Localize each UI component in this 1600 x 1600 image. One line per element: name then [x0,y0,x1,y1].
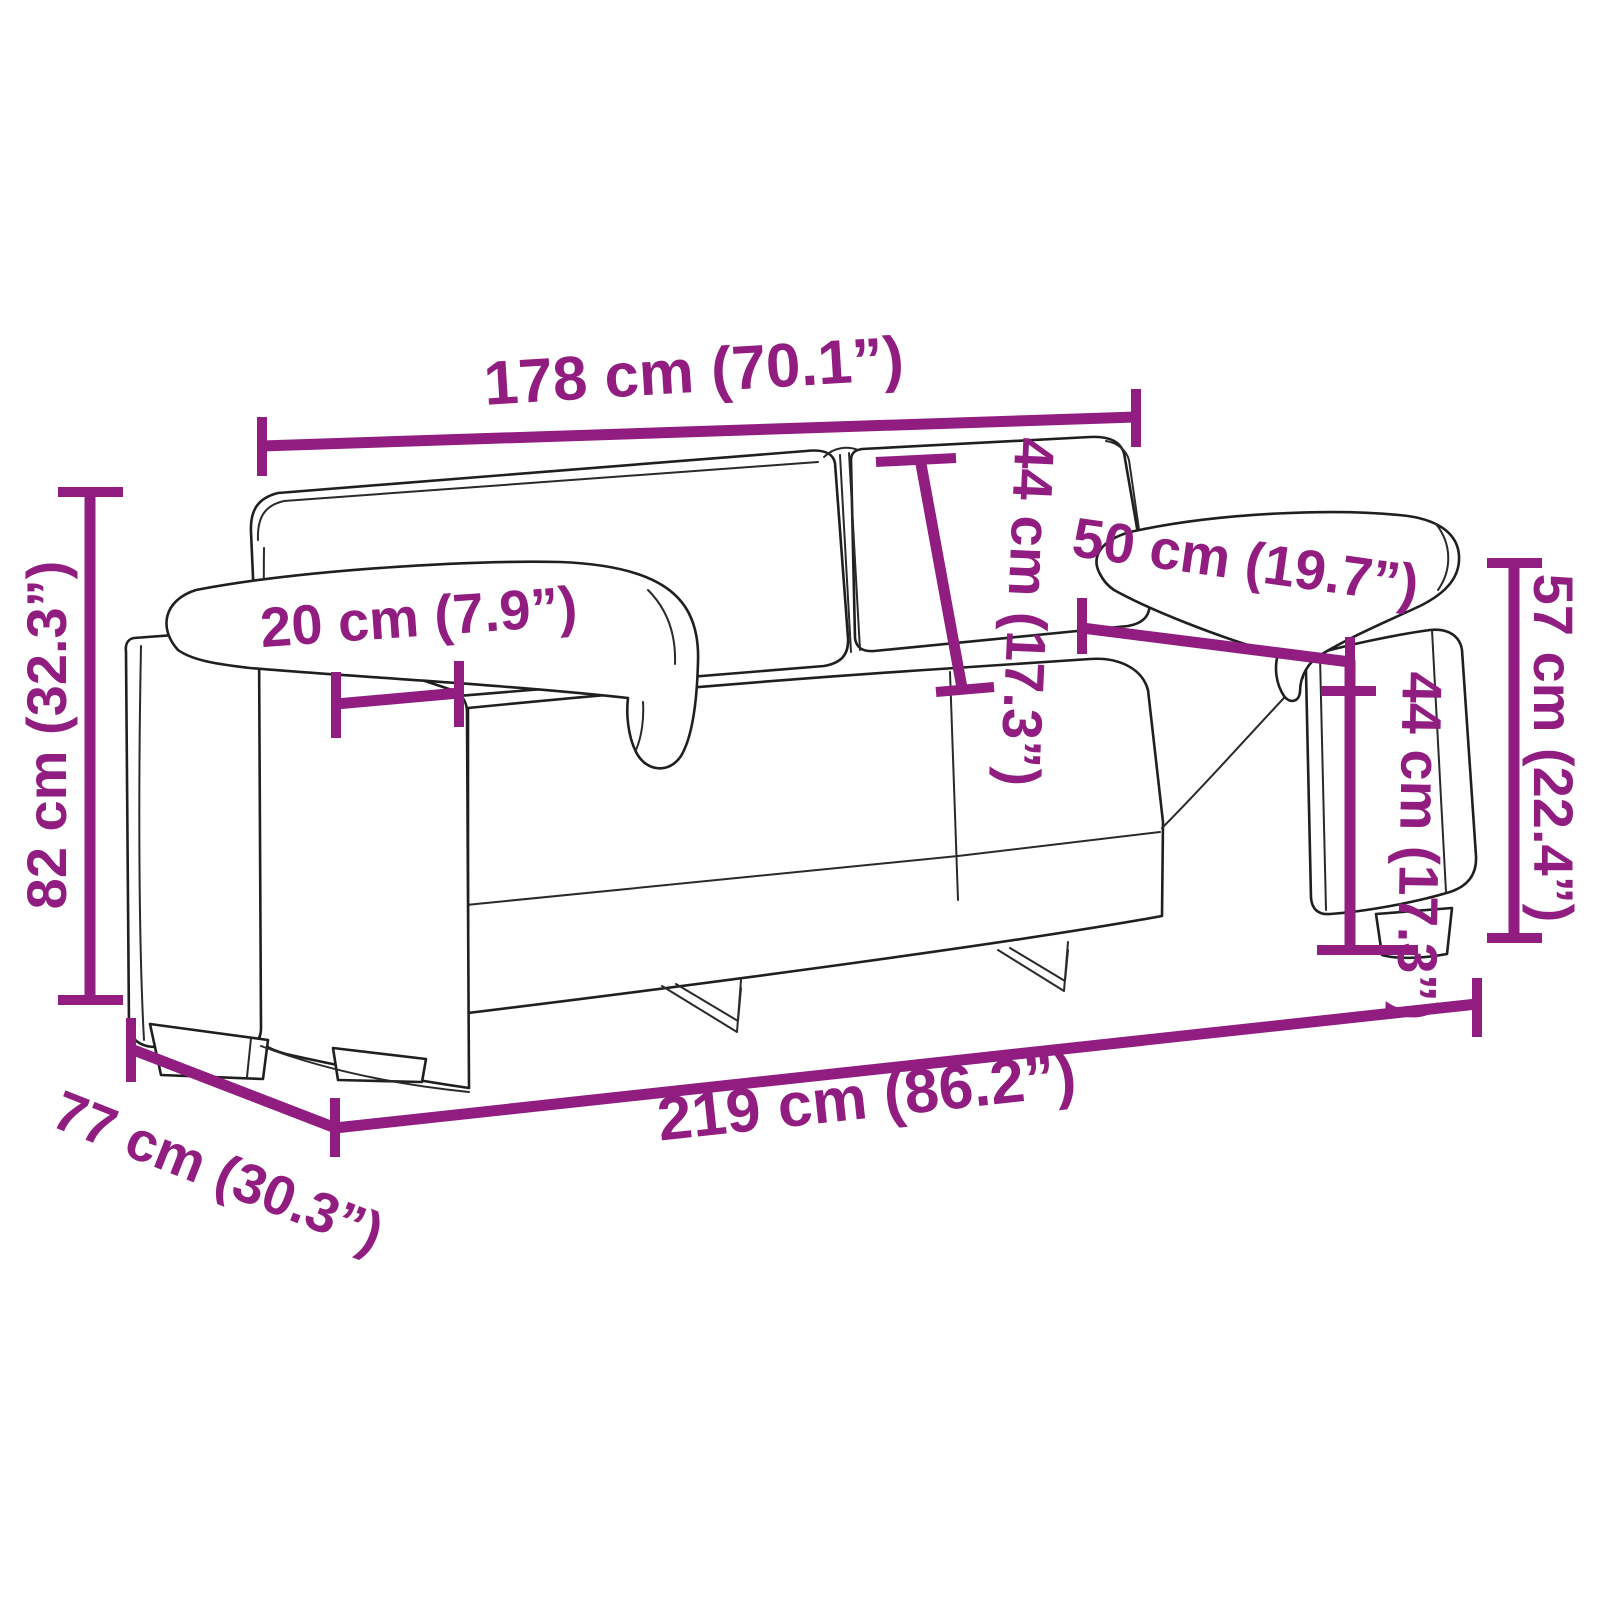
dim-label-overall-depth: 77 cm (30.3”) [45,1078,392,1264]
seat-block [468,659,1163,1013]
seat-right-arm-junction [1162,678,1303,828]
left-armrest-front-face [126,630,261,1047]
dimension-armrest-height: 57 cm (22.4”) [1487,563,1585,938]
sofa-dimension-diagram: 178 cm (70.1”) 82 cm (32.3”) 20 cm (7.9”… [0,0,1600,1600]
dimension-overall-height: 82 cm (32.3”) [15,492,123,1000]
left-armrest-inner-panel [259,644,469,1088]
center-wire-leg-right [998,942,1068,991]
dim-label-seat-height: 44 cm (17.3”) [1385,671,1454,1021]
dim-label-armrest-height: 57 cm (22.4”) [1522,574,1585,923]
dim-label-inner-width: 178 cm (70.1”) [482,324,906,419]
dim-label-overall-width: 219 cm (86.2”) [654,1041,1079,1155]
diagram-stage: 178 cm (70.1”) 82 cm (32.3”) 20 cm (7.9”… [0,0,1600,1600]
dim-label-overall-height: 82 cm (32.3”) [15,561,78,910]
